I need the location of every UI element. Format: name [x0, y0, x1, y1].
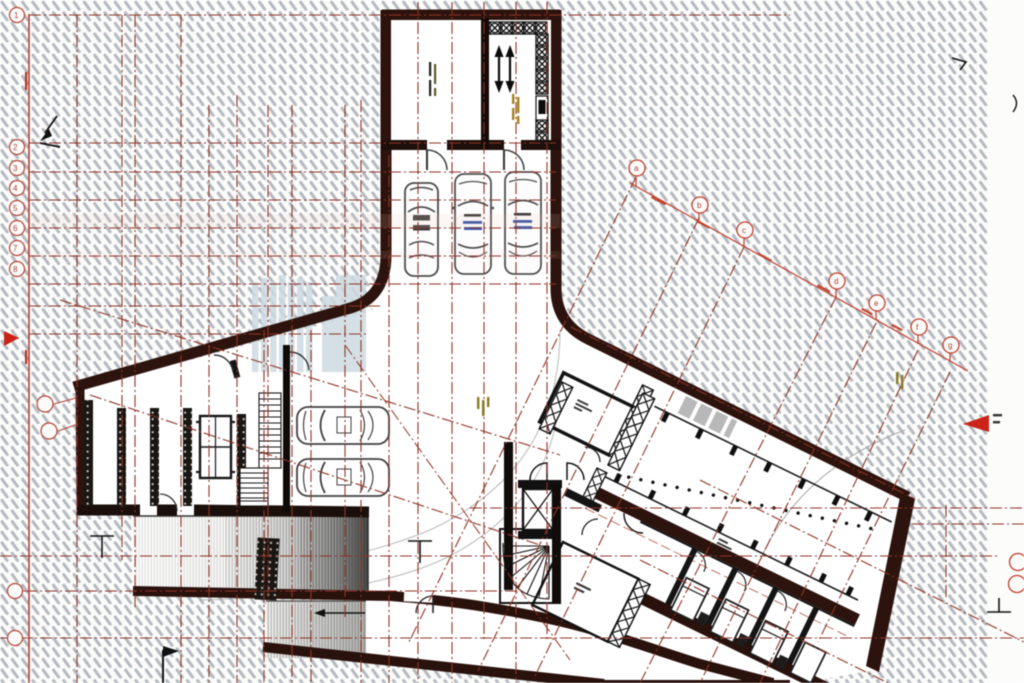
svg-text:g: g	[948, 341, 952, 350]
svg-text:1: 1	[14, 11, 19, 20]
svg-text:b: b	[697, 201, 702, 210]
svg-text:c: c	[742, 226, 746, 235]
svg-text:d: d	[834, 277, 838, 286]
svg-text:3: 3	[13, 164, 18, 173]
svg-text:5: 5	[13, 204, 18, 213]
svg-text:e: e	[874, 299, 879, 308]
svg-text:2: 2	[13, 143, 18, 152]
svg-text:a: a	[634, 164, 639, 173]
svg-text:8: 8	[13, 265, 18, 274]
svg-text:7: 7	[13, 244, 18, 253]
svg-text:4: 4	[13, 184, 18, 193]
svg-text:6: 6	[13, 224, 18, 233]
